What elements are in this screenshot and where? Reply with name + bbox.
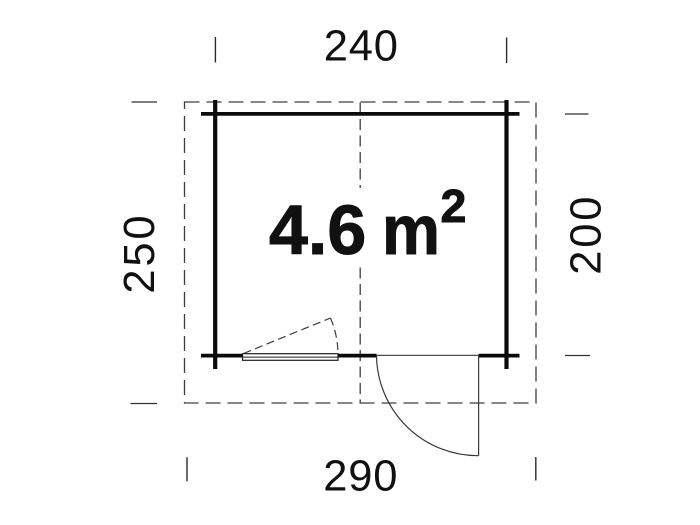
svg-text:200: 200 bbox=[563, 194, 611, 275]
svg-text:250: 250 bbox=[116, 213, 164, 294]
svg-text:290: 290 bbox=[323, 452, 398, 500]
svg-text:240: 240 bbox=[324, 22, 399, 70]
svg-text:4.6 m2: 4.6 m2 bbox=[269, 180, 466, 269]
